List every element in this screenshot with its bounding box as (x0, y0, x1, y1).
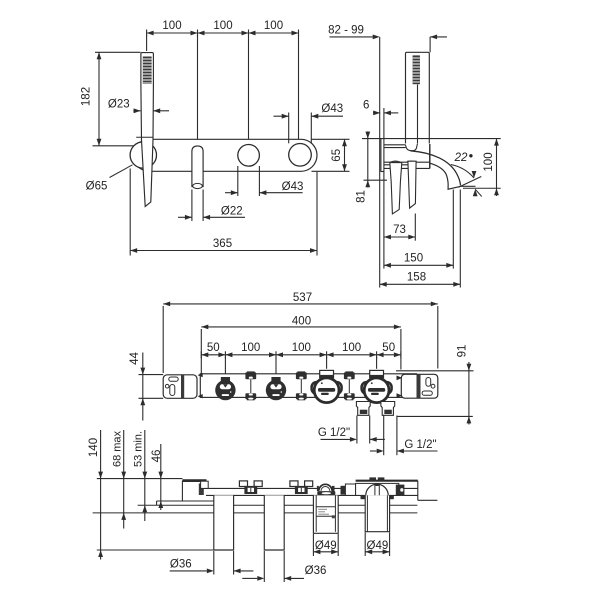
svg-text:365: 365 (213, 238, 232, 250)
svg-text:6: 6 (363, 100, 369, 112)
svg-text:400: 400 (292, 315, 311, 327)
svg-text:Ø23: Ø23 (108, 99, 130, 111)
svg-text:G 1/2": G 1/2" (404, 439, 436, 451)
svg-text:140: 140 (88, 438, 100, 457)
svg-text:G 1/2": G 1/2" (318, 427, 350, 439)
svg-text:50: 50 (382, 342, 395, 354)
svg-text:Ø22: Ø22 (221, 206, 243, 218)
svg-text:Ø65: Ø65 (86, 181, 108, 193)
svg-text:Ø49: Ø49 (315, 540, 337, 552)
svg-text:68 max: 68 max (112, 430, 124, 467)
svg-text:Ø49: Ø49 (367, 540, 389, 552)
svg-text:82 - 99: 82 - 99 (328, 25, 364, 37)
svg-text:Ø43: Ø43 (321, 103, 343, 115)
svg-text:53 min.: 53 min. (132, 431, 144, 467)
svg-text:Ø36: Ø36 (305, 565, 327, 577)
svg-text:158: 158 (407, 272, 426, 284)
svg-text:91: 91 (456, 345, 468, 358)
svg-text:46: 46 (151, 450, 163, 463)
svg-text:100: 100 (342, 342, 361, 354)
svg-text:Ø43: Ø43 (282, 181, 304, 193)
svg-text:100: 100 (162, 20, 181, 32)
svg-text:150: 150 (404, 253, 423, 265)
svg-text:182: 182 (81, 87, 93, 106)
svg-text:73: 73 (393, 224, 406, 236)
svg-text:44: 44 (129, 352, 141, 365)
svg-text:50: 50 (207, 342, 220, 354)
svg-text:100: 100 (292, 342, 311, 354)
svg-text:65: 65 (331, 149, 343, 162)
svg-text:Ø36: Ø36 (170, 558, 192, 570)
svg-text:100: 100 (264, 20, 283, 32)
svg-text:100: 100 (213, 20, 232, 32)
svg-text:22: 22 (454, 152, 468, 164)
svg-text:81: 81 (356, 190, 368, 203)
svg-text:537: 537 (293, 292, 312, 304)
svg-text:100: 100 (483, 152, 495, 171)
svg-text:100: 100 (241, 342, 260, 354)
